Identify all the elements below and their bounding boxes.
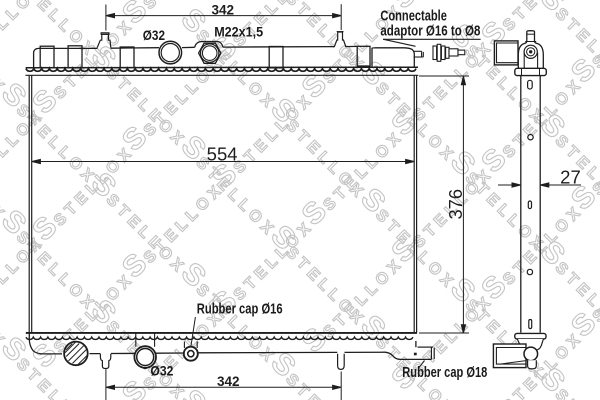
svg-text:554: 554: [207, 145, 238, 165]
svg-text:27: 27: [560, 168, 581, 188]
svg-text:Ø32: Ø32: [143, 28, 165, 43]
svg-text:adaptor Ø16 to Ø8: adaptor Ø16 to Ø8: [380, 23, 480, 40]
svg-text:376: 376: [446, 189, 466, 220]
svg-text:Rubber cap Ø18: Rubber cap Ø18: [402, 364, 487, 381]
svg-text:Ø32: Ø32: [150, 364, 173, 379]
svg-text:M22x1,5: M22x1,5: [214, 24, 263, 39]
svg-text:342: 342: [217, 374, 240, 389]
svg-text:342: 342: [212, 2, 235, 17]
svg-text:Rubber cap Ø16: Rubber cap Ø16: [197, 301, 283, 318]
